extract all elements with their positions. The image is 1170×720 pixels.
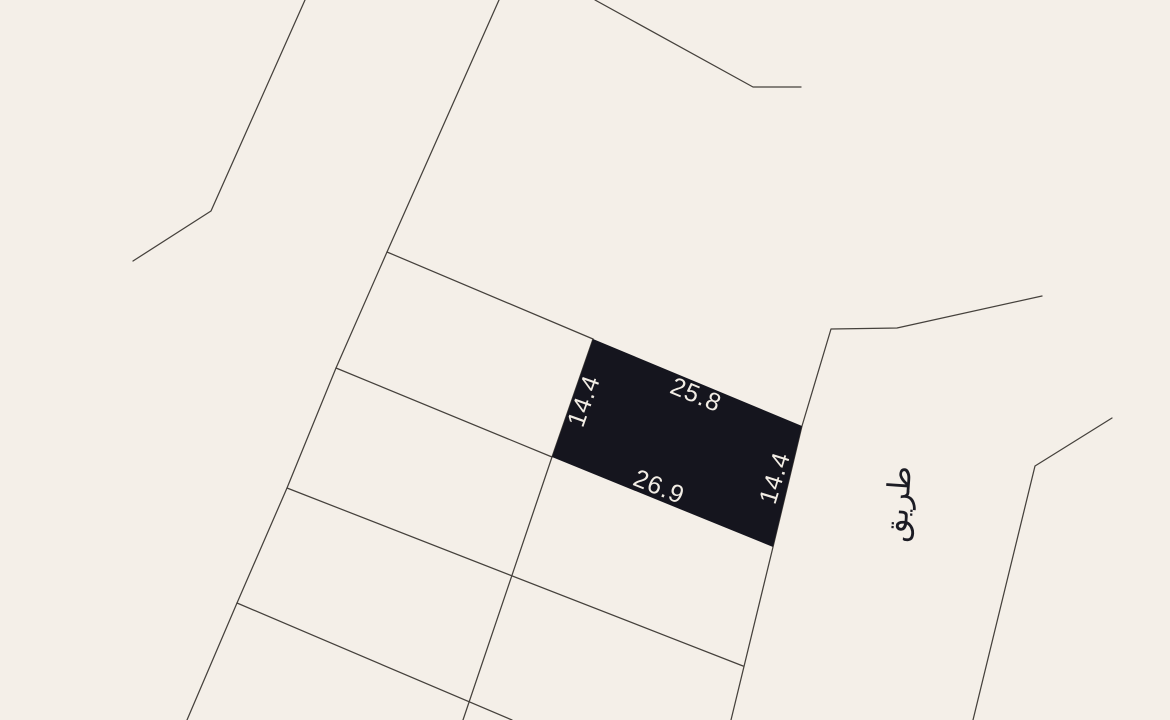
cadastral-parcel-map[interactable]: 25.8 14.4 26.9 14.4 طريق bbox=[0, 0, 1170, 720]
road-name-label: طريق bbox=[878, 465, 919, 544]
map-background bbox=[0, 0, 1170, 720]
